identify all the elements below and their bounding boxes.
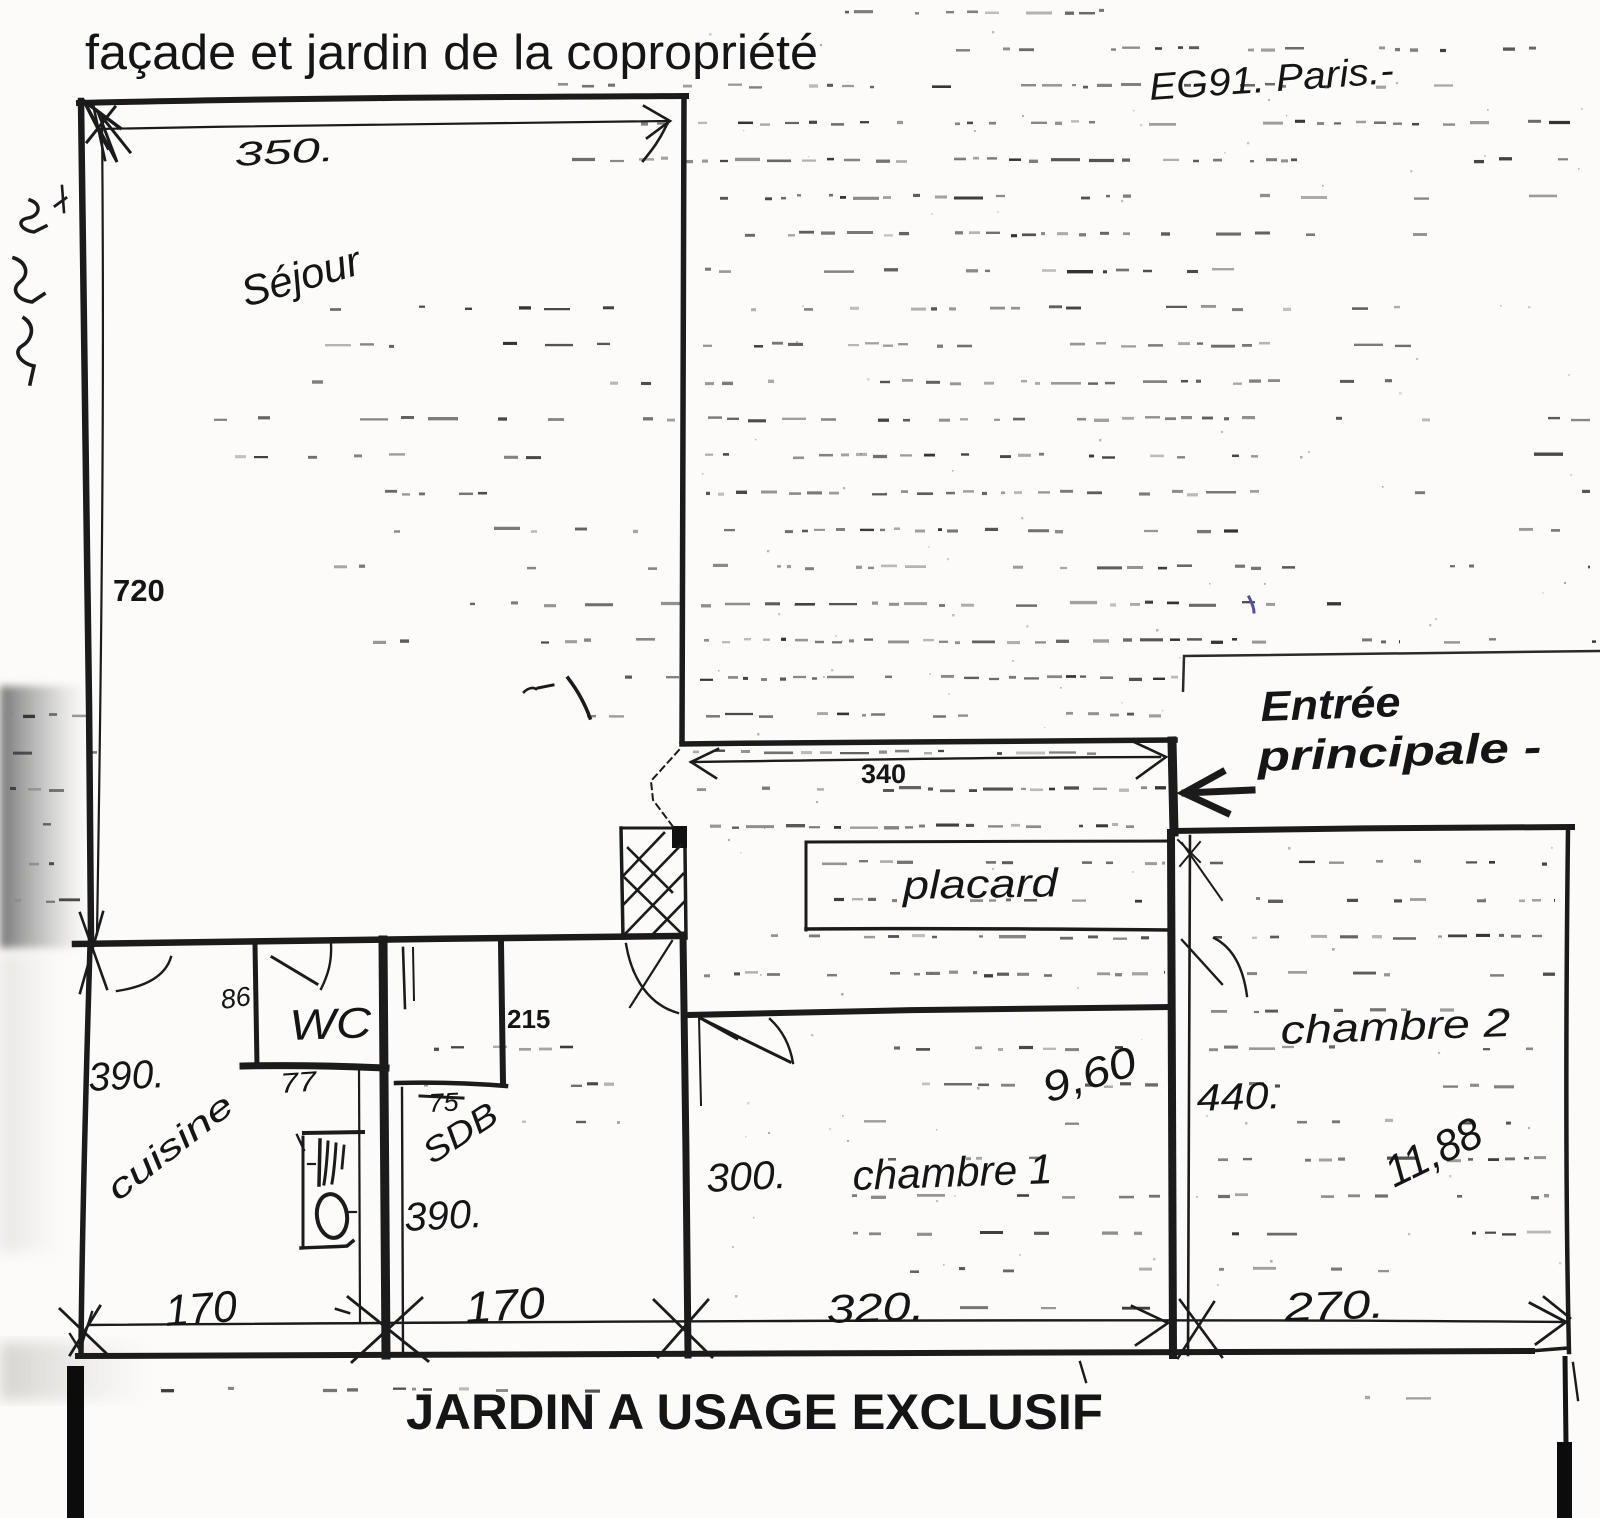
svg-text:270.: 270. xyxy=(1282,1283,1385,1331)
svg-text:chambre 2: chambre 2 xyxy=(1280,1001,1511,1053)
svg-text:720: 720 xyxy=(113,573,165,608)
svg-text:390.: 390. xyxy=(87,1052,165,1100)
svg-text:300.: 300. xyxy=(705,1153,787,1201)
svg-text:350.: 350. xyxy=(233,131,335,174)
svg-text:façade et jardin de la copropr: façade et jardin de la copropriété xyxy=(85,26,818,80)
svg-text:JARDIN A USAGE EXCLUSIF: JARDIN A USAGE EXCLUSIF xyxy=(406,1384,1103,1440)
svg-text:WC: WC xyxy=(289,999,374,1050)
svg-text:chambre 1: chambre 1 xyxy=(852,1145,1054,1199)
svg-text:86: 86 xyxy=(219,981,254,1015)
svg-text:75: 75 xyxy=(428,1086,460,1118)
svg-text:390.: 390. xyxy=(403,1192,483,1240)
svg-text:principale -: principale - xyxy=(1255,723,1542,780)
svg-text:215: 215 xyxy=(507,1004,550,1034)
svg-text:77: 77 xyxy=(279,1065,319,1099)
svg-text:170: 170 xyxy=(163,1282,239,1336)
svg-text:Entrée: Entrée xyxy=(1260,678,1402,730)
svg-text:placard: placard xyxy=(901,861,1060,908)
svg-text:320.: 320. xyxy=(826,1285,925,1332)
svg-text:440.: 440. xyxy=(1196,1075,1281,1120)
svg-text:170: 170 xyxy=(463,1278,547,1333)
svg-text:340: 340 xyxy=(861,759,906,789)
